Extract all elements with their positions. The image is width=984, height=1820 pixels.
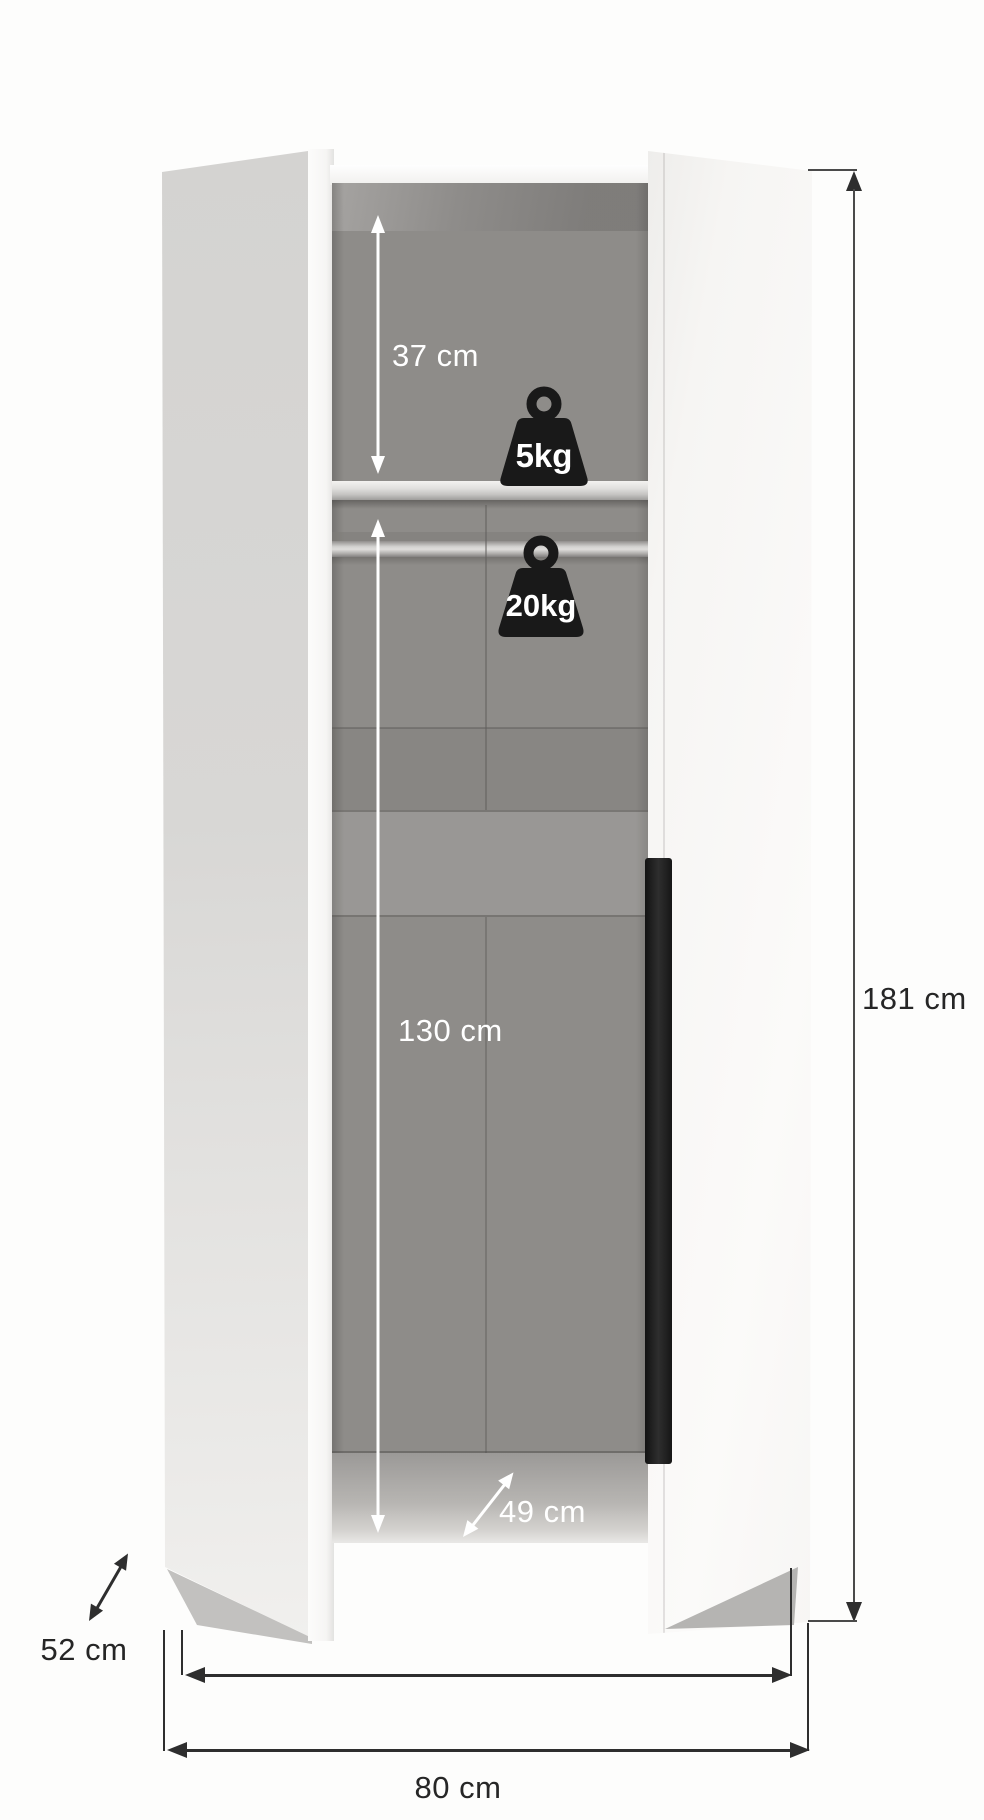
arrow-shaft [201, 1674, 776, 1677]
right-door [648, 151, 812, 1634]
dim-arrow-37cm [371, 215, 385, 474]
dim-label-37cm: 37 cm [392, 338, 479, 374]
wardrobe-dimension-diagram: 5kg 20kg 37 cm 130 cm 49 cm 181 cm [0, 0, 984, 1820]
back-panel-seam-vertical [485, 505, 487, 810]
arrow-shaft [853, 189, 855, 1604]
weight-icon-5kg: 5kg [496, 382, 592, 490]
dim-label-52cm: 52 cm [28, 1632, 140, 1668]
dim-arrow-52cm [83, 1550, 134, 1625]
arrow-down-icon [371, 1515, 385, 1533]
shelf [332, 481, 648, 500]
dim-arrow-130cm [371, 519, 385, 1533]
door-handle [645, 858, 672, 1464]
weight-icon-20kg: 20kg [493, 532, 589, 642]
arrow-shaft [377, 231, 380, 458]
back-panel-seam-vertical [485, 917, 487, 1453]
dim-connector-75-right [790, 1568, 792, 1676]
dim-arrow-75cm [185, 1667, 792, 1683]
dim-label-80cm: 80 cm [398, 1770, 518, 1806]
dim-connector-75-left [181, 1630, 183, 1675]
shelf-shadow [332, 500, 648, 509]
dim-connector-80-right [807, 1623, 809, 1751]
dim-connector-181-bottom [808, 1620, 857, 1622]
arrow-down-left-icon [83, 1604, 103, 1625]
weight-label-20kg: 20kg [506, 588, 577, 623]
arrow-shaft [377, 535, 380, 1517]
dim-label-130cm: 130 cm [398, 1013, 503, 1049]
dim-arrow-80cm [167, 1742, 810, 1758]
weight-ring [529, 541, 554, 566]
arrow-shaft [94, 1563, 124, 1611]
arrow-down-icon [371, 456, 385, 474]
dim-label-49cm: 49 cm [499, 1494, 586, 1530]
weight-label-5kg: 5kg [516, 437, 573, 474]
weight-ring [532, 392, 557, 417]
arrow-right-icon [790, 1742, 810, 1758]
carcass-left-edge [308, 149, 334, 1641]
left-door [162, 151, 312, 1641]
dim-connector-80-left [163, 1630, 165, 1751]
arrow-shaft [183, 1749, 794, 1752]
dim-label-181cm: 181 cm [862, 981, 967, 1017]
carcass-top-edge [330, 165, 650, 185]
arrow-down-icon [846, 1602, 862, 1622]
arrow-right-icon [772, 1667, 792, 1683]
arrow-up-icon [846, 171, 862, 191]
dim-arrow-181cm [846, 171, 862, 1622]
